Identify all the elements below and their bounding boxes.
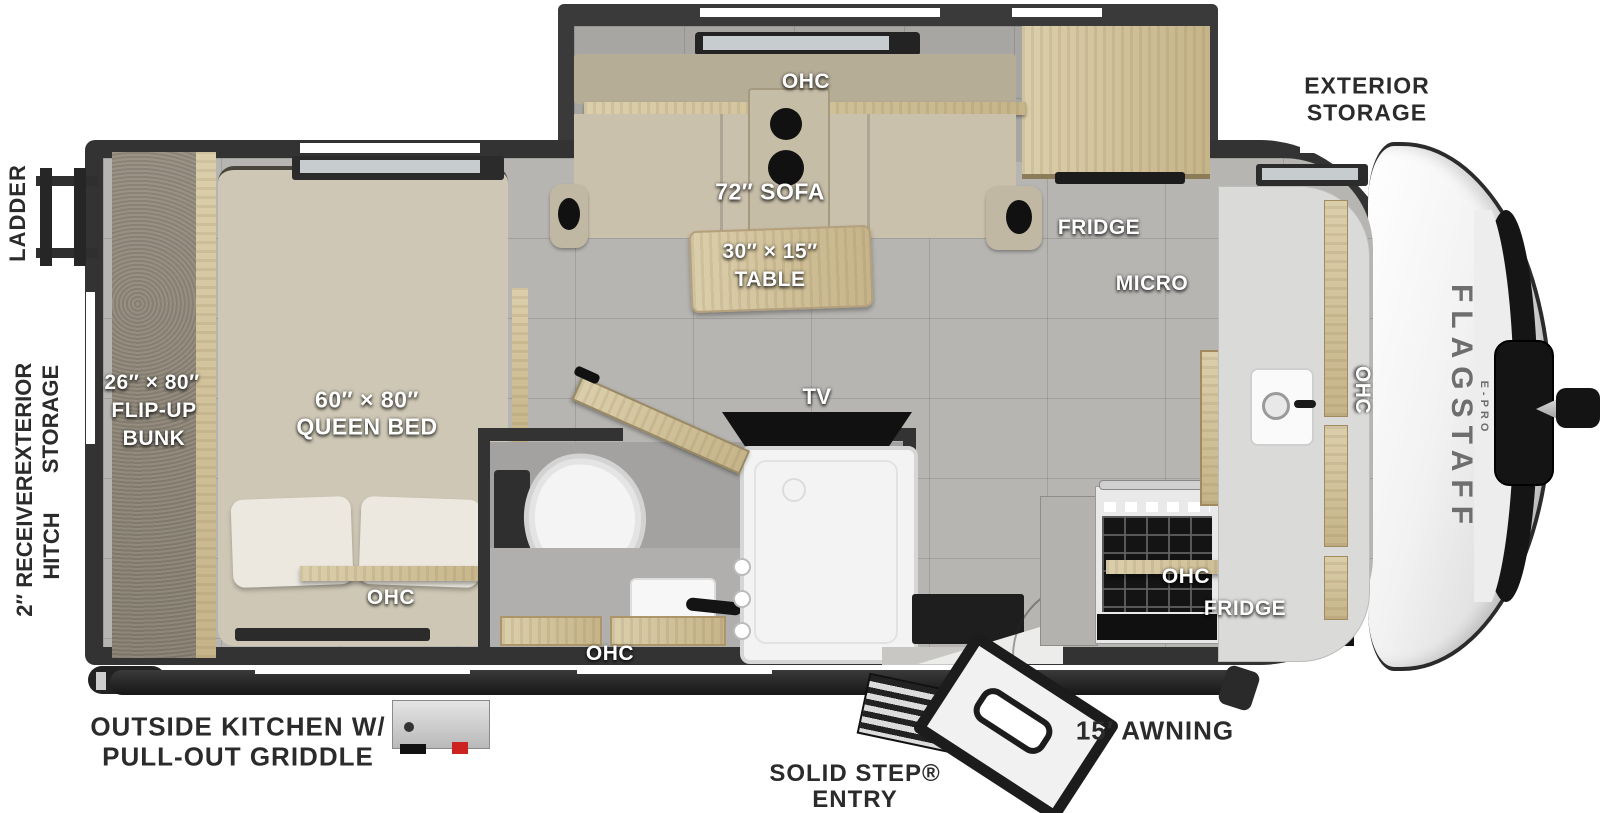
slide-window-pane [703, 36, 889, 50]
fridge-cabinet [1022, 26, 1210, 179]
window-strip-lower-2 [577, 666, 772, 674]
label-ladder: LADDER [5, 164, 31, 262]
griddle-foot [400, 744, 426, 754]
range-drawer [1097, 614, 1217, 640]
label-bunk-word2: BUNK [123, 427, 186, 451]
front-ohc-cabinet [1324, 200, 1348, 417]
cupholder-left-icon [558, 198, 580, 230]
window-strip-lower [255, 666, 470, 674]
label-ohc-bath: OHC [586, 642, 634, 666]
bed-window-lower [235, 628, 430, 641]
label-micro: MICRO [1116, 272, 1189, 296]
bathroom-wall-top [478, 428, 623, 441]
brand-model: FLAGSTAFF [1444, 248, 1478, 568]
label-outside-kitchen-1: OUTSIDE KITCHEN W/ [90, 712, 385, 743]
slide-window-strip [700, 8, 940, 17]
shower-hinge-icon-2 [733, 590, 751, 608]
range-knob-row [1104, 502, 1210, 512]
label-awning: 15′ AWNING [1076, 716, 1234, 747]
label-fridge-lower: FRIDGE [1204, 597, 1286, 621]
floorplan-canvas: E-PRO FLAGSTAFF OHC 72″ SOFA 30″ × 15″ T… [0, 0, 1600, 813]
label-outside-kitchen-2: PULL-OUT GRIDDLE [102, 742, 374, 773]
kitchen-faucet-handle-icon [1294, 400, 1316, 408]
label-fridge-upper: FRIDGE [1058, 216, 1140, 240]
kitchen-faucet-icon [1262, 392, 1290, 420]
bathroom-wall-left [478, 428, 490, 660]
label-entry-2: ENTRY [812, 786, 897, 813]
console-cupholder-icon [770, 108, 802, 140]
front-window-pane [1262, 168, 1358, 180]
label-table-word: TABLE [735, 268, 806, 292]
label-sofa: 72″ SOFA [715, 179, 825, 206]
slide-window-strip-2 [1012, 8, 1102, 17]
label-front-storage-2: STORAGE [1307, 100, 1427, 127]
shower-hinge-icon [733, 558, 751, 576]
bedroom-window-strip [300, 143, 480, 153]
brand-series: E-PRO [1478, 248, 1490, 568]
kitchen-window-strip [1300, 143, 1372, 153]
label-hitch-1: 2″ RECEIVER [11, 416, 38, 676]
bumper-pin-icon [96, 672, 106, 690]
label-entry-1: SOLID STEP® [769, 760, 940, 788]
shower-pan-line [754, 460, 898, 644]
label-hitch-2: HITCH [38, 416, 65, 676]
label-ohc-front: OHC [1350, 366, 1374, 414]
front-ohc-cabinet-2 [1324, 425, 1348, 547]
shower-hinge-icon-3 [733, 622, 751, 640]
kitchen-base-cabinet [1040, 496, 1098, 646]
front-ohc-cabinet-3 [1324, 556, 1348, 620]
label-bunk-word1: FLIP-UP [111, 399, 196, 423]
label-front-storage-1: EXTERIOR [1304, 73, 1430, 100]
bedroom-divider [512, 288, 528, 443]
label-ohc-kitchen: OHC [1162, 565, 1210, 589]
fridge-front-trim [1055, 172, 1185, 184]
label-bed-word: QUEEN BED [296, 414, 437, 441]
bed-ohc-shelf [300, 566, 495, 581]
bunk-rail [196, 152, 216, 658]
bedroom-window-pane [300, 160, 480, 173]
label-tv: TV [802, 384, 831, 410]
label-ohc-sofa: OHC [782, 70, 830, 94]
tongue-jack-head [1556, 388, 1600, 428]
label-bunk-size: 26″ × 80″ [104, 371, 199, 395]
griddle-handle [452, 742, 468, 754]
label-ohc-bed: OHC [367, 586, 415, 610]
entry-cabinet [912, 594, 1024, 644]
griddle-knob-icon [404, 722, 414, 732]
label-hitch: 2″ RECEIVER HITCH [11, 416, 65, 676]
cupholder-right-icon [1006, 200, 1032, 234]
label-bed-size: 60″ × 80″ [315, 387, 419, 414]
rear-storage-door-strip [86, 292, 95, 444]
label-table-size: 30″ × 15″ [722, 240, 817, 264]
tv-screen [722, 412, 912, 446]
shower-drain-icon [782, 478, 806, 502]
brand-logo: E-PRO FLAGSTAFF [1434, 248, 1490, 568]
